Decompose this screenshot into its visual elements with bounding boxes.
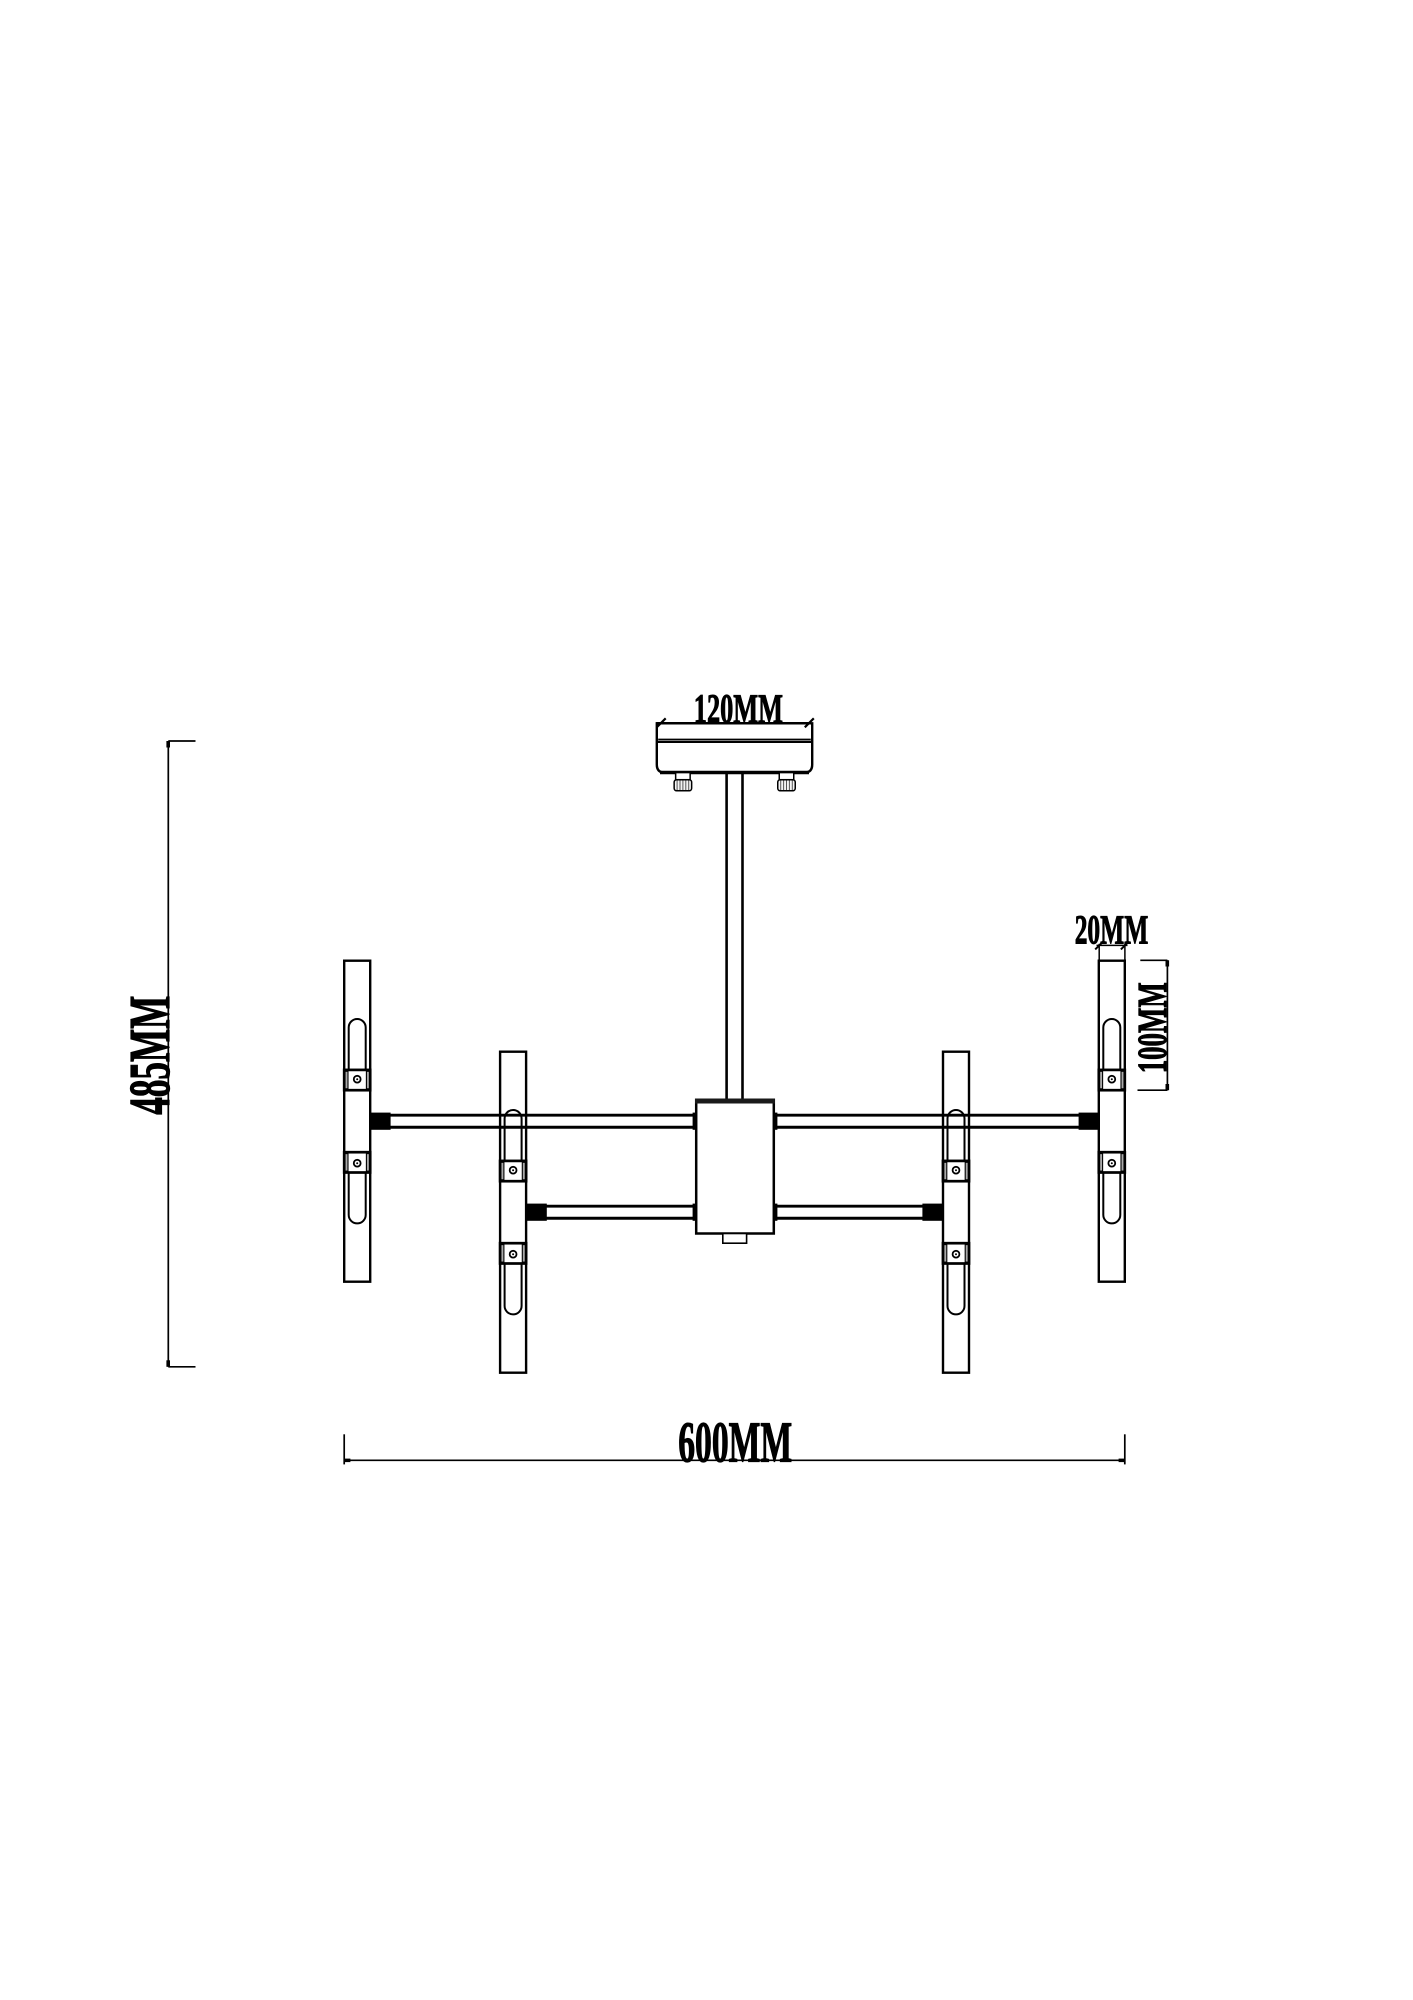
svg-text:20MM: 20MM xyxy=(1075,906,1149,952)
svg-text:600MM: 600MM xyxy=(678,1409,792,1474)
svg-text:485MM: 485MM xyxy=(117,996,182,1115)
svg-text:100MM: 100MM xyxy=(1129,982,1175,1073)
